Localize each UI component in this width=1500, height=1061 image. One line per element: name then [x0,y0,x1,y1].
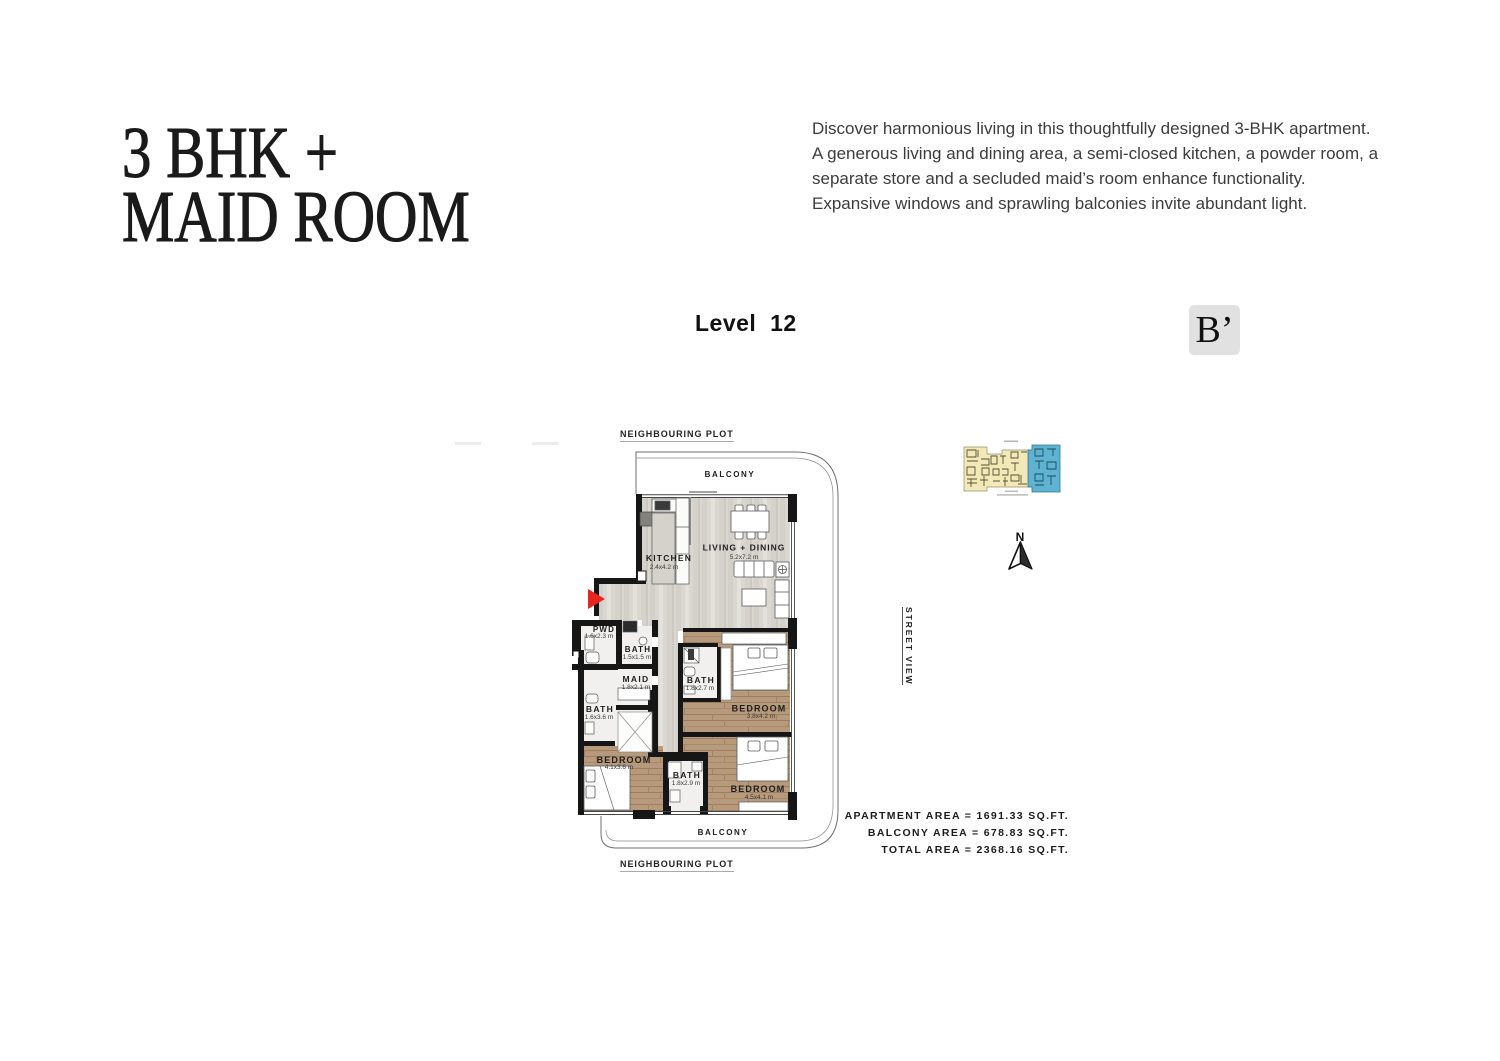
svg-text:1.6x2.3 m: 1.6x2.3 m [585,633,614,640]
svg-text:5.2x7.2 m: 5.2x7.2 m [730,554,759,561]
svg-text:MAID: MAID [623,674,650,684]
svg-text:BALCONY: BALCONY [705,470,756,479]
svg-text:BATH: BATH [673,770,701,780]
svg-text:BATH: BATH [625,645,651,654]
svg-text:1.6x3.6 m: 1.6x3.6 m [585,714,614,721]
svg-text:BATH: BATH [687,675,715,685]
svg-text:4.5x4.1 m: 4.5x4.1 m [745,794,774,801]
svg-text:BEDROOM: BEDROOM [732,704,787,714]
svg-text:1.5x1.5 m: 1.5x1.5 m [623,654,652,661]
svg-text:BALCONY: BALCONY [698,828,749,837]
svg-text:KITCHEN: KITCHEN [646,553,692,563]
svg-text:BATH: BATH [586,704,614,714]
svg-text:4.1x3.6 m: 4.1x3.6 m [605,764,634,771]
svg-text:1.8x2.9 m: 1.8x2.9 m [672,780,701,787]
svg-text:LIVING + DINING: LIVING + DINING [703,543,786,553]
svg-text:2.4x4.2 m: 2.4x4.2 m [650,564,679,571]
svg-text:1.8x2.1 m: 1.8x2.1 m [622,684,651,691]
svg-text:1.8x2.7 m: 1.8x2.7 m [686,685,715,692]
svg-text:3.8x4.2 m: 3.8x4.2 m [747,713,776,720]
svg-text:BEDROOM: BEDROOM [731,784,786,794]
